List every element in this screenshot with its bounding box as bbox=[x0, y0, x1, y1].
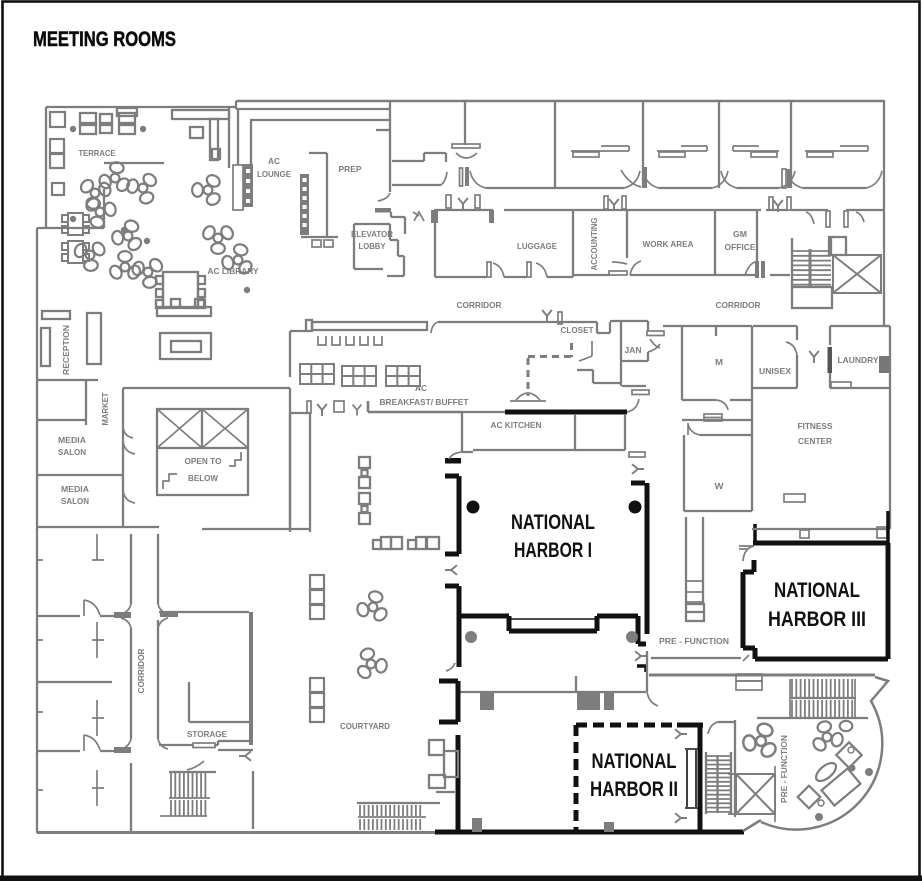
svg-text:PRE - FUNCTION: PRE - FUNCTION bbox=[779, 735, 789, 803]
svg-text:BELOW: BELOW bbox=[188, 473, 219, 483]
svg-text:UNISEX: UNISEX bbox=[759, 366, 791, 376]
svg-text:W: W bbox=[715, 481, 725, 491]
svg-text:OPEN TO: OPEN TO bbox=[185, 456, 222, 466]
svg-text:LUGGAGE: LUGGAGE bbox=[517, 241, 557, 251]
svg-text:CORRIDOR: CORRIDOR bbox=[136, 649, 146, 694]
svg-text:NATIONAL: NATIONAL bbox=[774, 579, 860, 602]
svg-text:JAN: JAN bbox=[625, 345, 642, 355]
svg-text:STORAGE: STORAGE bbox=[187, 729, 227, 739]
svg-text:HARBOR II: HARBOR II bbox=[590, 778, 678, 801]
svg-text:RECEPTION: RECEPTION bbox=[61, 325, 71, 375]
svg-text:GM: GM bbox=[733, 229, 747, 239]
svg-text:BREAKFAST/ BUFFET: BREAKFAST/ BUFFET bbox=[380, 397, 470, 407]
svg-text:COURTYARD: COURTYARD bbox=[340, 721, 390, 731]
svg-text:MEDIA: MEDIA bbox=[58, 435, 86, 445]
svg-text:MEDIA: MEDIA bbox=[61, 484, 89, 494]
svg-text:AC: AC bbox=[268, 156, 280, 166]
svg-text:SALON: SALON bbox=[61, 496, 89, 506]
svg-text:AC: AC bbox=[415, 383, 427, 393]
svg-text:SALON: SALON bbox=[58, 447, 86, 457]
svg-text:NATIONAL: NATIONAL bbox=[592, 750, 677, 773]
svg-text:AC KITCHEN: AC KITCHEN bbox=[491, 420, 542, 430]
svg-text:LOBBY: LOBBY bbox=[359, 241, 386, 251]
svg-text:ACCOUNTING: ACCOUNTING bbox=[589, 217, 599, 270]
svg-text:CLOSET: CLOSET bbox=[561, 325, 595, 335]
svg-text:CENTER: CENTER bbox=[798, 436, 832, 446]
svg-text:HARBOR III: HARBOR III bbox=[768, 608, 866, 631]
svg-text:TERRACE: TERRACE bbox=[79, 148, 116, 158]
svg-text:LOUNGE: LOUNGE bbox=[257, 169, 291, 179]
svg-text:CORRIDOR: CORRIDOR bbox=[457, 300, 502, 310]
svg-text:WORK AREA: WORK AREA bbox=[643, 239, 694, 249]
svg-text:ELEVATOR: ELEVATOR bbox=[351, 229, 393, 239]
svg-text:LAUNDRY: LAUNDRY bbox=[838, 355, 879, 365]
svg-text:OFFICE: OFFICE bbox=[725, 242, 756, 252]
svg-text:MARKET: MARKET bbox=[100, 392, 110, 426]
svg-text:AC LIBRARY: AC LIBRARY bbox=[208, 266, 259, 276]
svg-text:M: M bbox=[715, 357, 723, 367]
svg-text:NATIONAL: NATIONAL bbox=[511, 511, 595, 534]
svg-text:FITNESS: FITNESS bbox=[798, 421, 833, 431]
svg-text:MEETING ROOMS: MEETING ROOMS bbox=[33, 28, 176, 51]
svg-text:PREP: PREP bbox=[339, 164, 362, 174]
svg-text:PRE - FUNCTION: PRE - FUNCTION bbox=[659, 636, 729, 646]
svg-text:CORRIDOR: CORRIDOR bbox=[716, 300, 761, 310]
svg-text:HARBOR I: HARBOR I bbox=[514, 539, 592, 562]
